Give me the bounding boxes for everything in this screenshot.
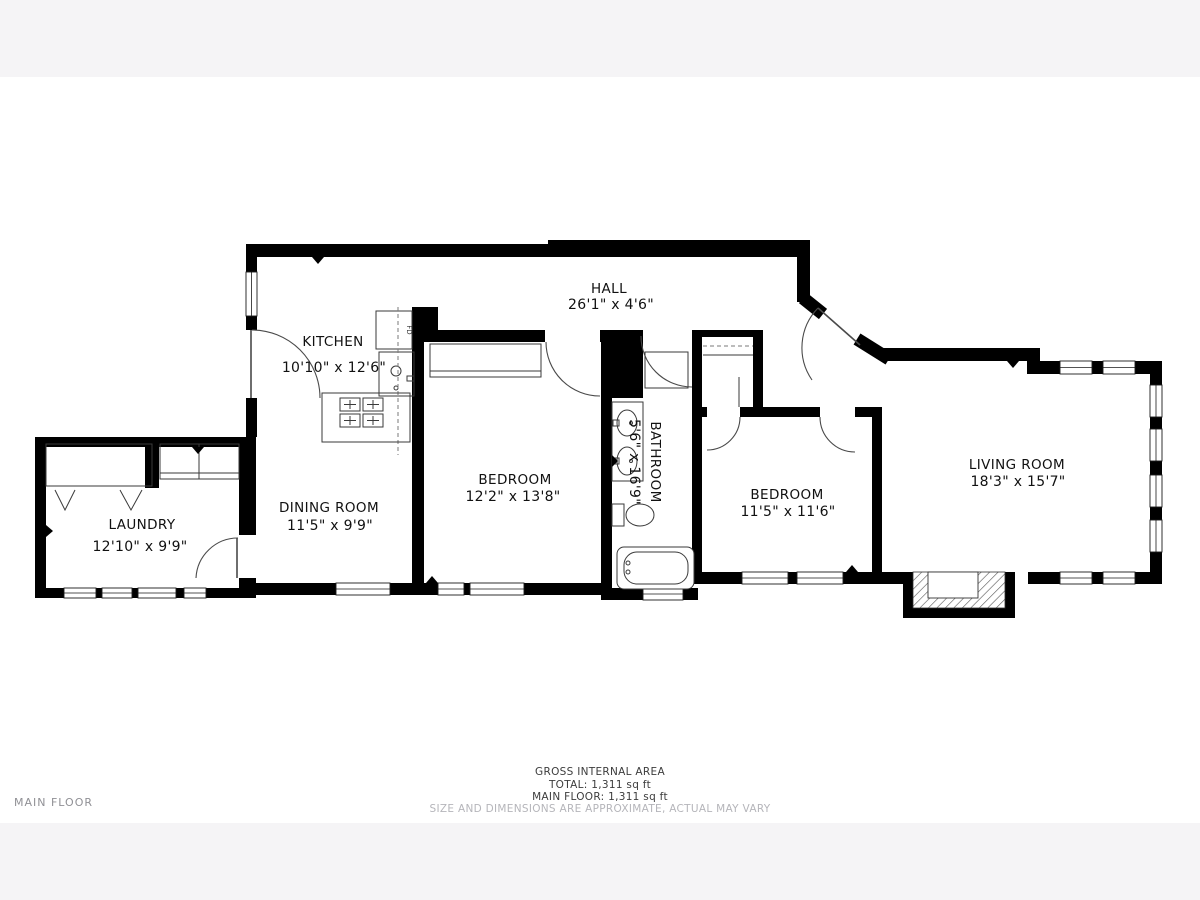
laundry-label: LAUNDRY bbox=[108, 517, 175, 533]
total-area-text: TOTAL: 1,311 sq ft bbox=[548, 779, 651, 791]
dining-label: DINING ROOM bbox=[279, 500, 379, 516]
gross-area-text: GROSS INTERNAL AREA bbox=[535, 766, 665, 778]
kitchen-label: KITCHEN bbox=[302, 334, 363, 350]
fridge-label: FD bbox=[405, 325, 413, 334]
dining-dims: 11'5" x 9'9" bbox=[287, 518, 373, 534]
bedroom1-label: BEDROOM bbox=[478, 472, 551, 488]
hall-label: HALL bbox=[591, 281, 627, 297]
bathroom-label: BATHROOM bbox=[647, 421, 663, 502]
floorplan-page: FD bbox=[0, 0, 1200, 900]
living-dims: 18'3" x 15'7" bbox=[970, 474, 1065, 490]
hall-dims: 26'1" x 4'6" bbox=[568, 297, 654, 313]
floor-name-label: MAIN FLOOR bbox=[14, 796, 93, 809]
disclaimer-text: SIZE AND DIMENSIONS ARE APPROXIMATE, ACT… bbox=[430, 803, 771, 815]
fireplace bbox=[903, 572, 1015, 618]
bedroom2-label: BEDROOM bbox=[750, 487, 823, 503]
bathroom-dims: 5'6" x 16'9" bbox=[626, 419, 642, 505]
plan-canvas bbox=[0, 77, 1200, 823]
bedroom2-dims: 11'5" x 11'6" bbox=[740, 504, 835, 520]
firebox bbox=[928, 572, 978, 598]
living-label: LIVING ROOM bbox=[969, 457, 1065, 473]
bedroom1-dims: 12'2" x 13'8" bbox=[465, 489, 560, 505]
laundry-dims: 12'10" x 9'9" bbox=[92, 539, 187, 555]
kitchen-dims: 10'10" x 12'6" bbox=[282, 360, 386, 376]
main-floor-area-text: MAIN FLOOR: 1,311 sq ft bbox=[532, 791, 668, 803]
bathtub bbox=[617, 547, 694, 589]
